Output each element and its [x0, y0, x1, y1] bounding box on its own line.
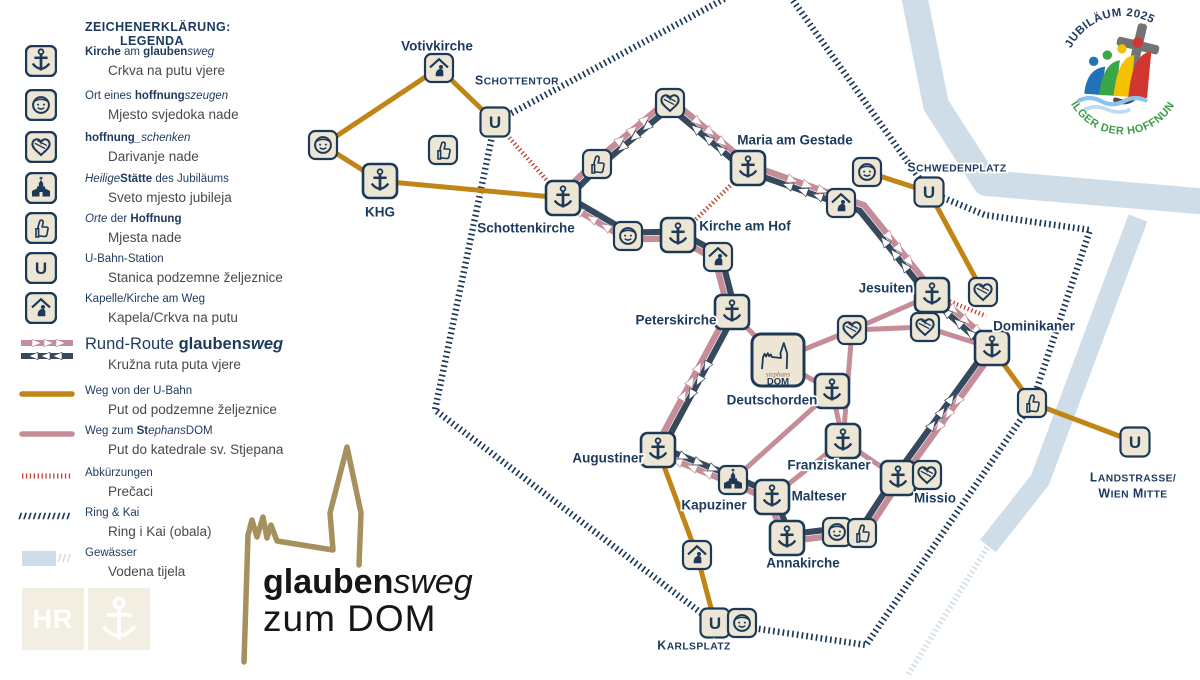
- map-node-schottentor-u: U: [481, 108, 510, 137]
- legend-sw-orange-icon: [18, 386, 76, 419]
- map-label-4: Maria am Gestade: [737, 133, 853, 148]
- legend-item-5-de: U-Bahn-Station: [85, 253, 164, 265]
- logo-line2: zum DOM: [263, 600, 473, 638]
- map-label-6: SCHWEDENPLATZ: [907, 161, 1006, 175]
- jubilee-2025-badge: JUBILÄUM 2025 PILGER DER HOFFNUNG: [1055, 8, 1191, 144]
- legend-sw-water-icon: [18, 548, 76, 581]
- poster-canvas: UUstephansDOMUUVotivkircheSCHOTTENTORKHG…: [0, 0, 1200, 675]
- map-node-malteser: [755, 480, 789, 514]
- legend-item-11-hr: Ring i Kai (obala): [108, 524, 212, 539]
- legend-item-9-de: Weg zum StephansDOM: [85, 425, 213, 437]
- glaubensweg-logo: glaubensweg zum DOM: [230, 425, 510, 675]
- legend-item-2-de: hoffnung_schenken: [85, 132, 190, 144]
- map-node-maria-am-gestade: [731, 151, 765, 185]
- ubahn-way-3: [380, 181, 563, 198]
- legend-item-1-hr: Mjesto svjedoka nade: [108, 107, 239, 122]
- map-label-17: KARLSPLATZ: [657, 639, 730, 653]
- logo-word-glauben: glauben: [263, 563, 393, 601]
- map-label-18: LANDSTRASSE/: [1090, 471, 1176, 485]
- map-node-votivkirche: [425, 54, 453, 82]
- map-node-khg: [363, 164, 397, 198]
- legend-item-11-de: Ring & Kai: [85, 507, 139, 519]
- legend-item-0-hr: Crkva na putu vjere: [108, 63, 225, 78]
- legend-item-6-hr: Kapela/Crkva na putu: [108, 310, 238, 325]
- map-node-heart-mid: [838, 316, 866, 344]
- map-node-missio: [881, 461, 915, 495]
- map-label-2: KHG: [365, 205, 395, 220]
- map-label-19: WIEN MITTE: [1098, 487, 1167, 501]
- map-label-0: Votivkirche: [401, 39, 473, 54]
- legend-item-10-de: Abkürzungen: [85, 467, 153, 479]
- map-node-schottenkirche: [546, 181, 580, 215]
- map-node-heart-n: [656, 89, 684, 117]
- legend-anchor-icon: [25, 45, 57, 82]
- ubahn-icon: U: [489, 113, 501, 132]
- map-node-peterskirche: [715, 295, 749, 329]
- map-node-franziskaner: [826, 424, 860, 458]
- legend-sw-dotted-icon: [18, 468, 76, 501]
- map-node-chapel-hof: [704, 243, 732, 271]
- legend-item-7-hr: Kružna ruta puta vjere: [108, 357, 241, 372]
- map-node-thumb-n: [583, 150, 611, 178]
- legend-item-5-hr: Stanica podzemne željeznice: [108, 270, 283, 285]
- logo-line1: glaubensweg: [263, 565, 473, 600]
- map-label-12: Malteser: [792, 489, 848, 504]
- legend-item-12-hr: Vodena tijela: [108, 564, 185, 579]
- legend-ubahn-icon: U: [25, 252, 57, 289]
- map-label-14: Augustiner: [572, 451, 644, 466]
- legend-chapel-icon: [25, 292, 57, 329]
- map-node-thumb-nw: [429, 136, 457, 164]
- map-label-9: Peterskirche: [635, 313, 717, 328]
- legend-item-6-de: Kapelle/Kirche am Weg: [85, 293, 205, 305]
- map-node-dominikaner: [975, 331, 1009, 365]
- map-label-8: Dominikaner: [993, 319, 1076, 334]
- map-node-smiley-karls: [728, 609, 756, 637]
- map-label-11: Franziskaner: [787, 458, 871, 473]
- map-label-10: Deutschorden: [727, 393, 818, 408]
- map-label-1: SCHOTTENTOR: [475, 74, 559, 88]
- svg-text:U: U: [489, 113, 501, 132]
- map-node-chapel-s: [683, 541, 711, 569]
- legend-sw-hatch-icon: [18, 508, 76, 541]
- legend-panel: ZEICHENERKLÄRUNG: LEGENDA Kirche am glau…: [0, 0, 250, 675]
- legend-thumb-icon: [25, 212, 57, 249]
- svg-text:U: U: [35, 259, 47, 278]
- map-node-jesuiten: [915, 278, 949, 312]
- legend-item-10-hr: Prečaci: [108, 484, 153, 499]
- svg-text:U: U: [923, 183, 935, 202]
- legend-item-4-hr: Mjesta nade: [108, 230, 182, 245]
- map-label-5: Kirche am Hof: [699, 219, 791, 234]
- hr-watermark: HR: [22, 588, 84, 650]
- legend-item-1-de: Ort eines hoffnungszeugen: [85, 90, 228, 102]
- map-label-13: Missio: [914, 491, 956, 506]
- legend-item-7-de: Rund-Route glaubensweg: [85, 335, 283, 354]
- ubahn-icon: U: [923, 183, 935, 202]
- legend-item-8-hr: Put od podzemne željeznice: [108, 402, 277, 417]
- map-node-schwedenplatz-u: U: [915, 178, 944, 207]
- legend-item-3-de: HeiligeStätte des Jubiläums: [85, 173, 229, 185]
- legend-item-3-hr: Sveto mjesto jubileja: [108, 190, 232, 205]
- map-node-heart-missio: [913, 461, 941, 489]
- map-node-deutschorden: [815, 374, 849, 408]
- logo-text: glaubensweg zum DOM: [263, 565, 473, 637]
- legend-sw-route-icon: [18, 336, 76, 369]
- legend-item-4-de: Orte der Hoffnung: [85, 213, 181, 225]
- map-node-kapuziner: [719, 466, 747, 494]
- map-node-chapel-ne: [827, 189, 855, 217]
- legend-item-12-de: Gewässer: [85, 547, 137, 559]
- map-node-stephansdom: stephansDOM: [752, 334, 804, 388]
- ubahn-icon: U: [1129, 433, 1141, 452]
- legend-sw-pink-icon: [18, 426, 76, 459]
- map-node-smiley-ne: [853, 158, 881, 186]
- legend-item-2-hr: Darivanje nade: [108, 149, 199, 164]
- legend-item-0-de: Kirche am glaubensweg: [85, 46, 214, 58]
- ubahn-way-0: [323, 68, 439, 145]
- legend-item-8-de: Weg von der U-Bahn: [85, 385, 192, 397]
- svg-text:U: U: [1129, 433, 1141, 452]
- pilger-der-hoffnung-logo: JUBILÄUM 2025 PILGER DER HOFFNUNG: [1055, 8, 1191, 144]
- ubahn-icon: U: [709, 614, 721, 633]
- water-hatch-line: [906, 540, 992, 675]
- map-label-3: Schottenkirche: [477, 221, 575, 236]
- map-node-kirche-am-hof: [661, 218, 695, 252]
- map-node-smiley-hof: [614, 222, 642, 250]
- map-label-7: Jesuiten: [859, 281, 914, 296]
- map-node-annakirche: [770, 521, 804, 555]
- map-node-thumb-anna: [848, 519, 876, 547]
- map-label-16: Annakirche: [766, 556, 840, 571]
- logo-word-sweg: sweg: [393, 563, 472, 601]
- svg-text:U: U: [709, 614, 721, 633]
- legend-title: ZEICHENERKLÄRUNG:: [85, 20, 231, 34]
- anchor-watermark: [88, 588, 150, 650]
- map-node-karlsplatz-u: U: [701, 609, 730, 638]
- map-node-heart-jesuiten: [969, 278, 997, 306]
- anchor-watermark-icon: [94, 594, 144, 644]
- map-node-landstrasse-u: U: [1121, 428, 1150, 457]
- svg-text:DOM: DOM: [767, 377, 789, 388]
- map-node-smiley-anna: [823, 518, 851, 546]
- map-node-smiley-nw: [309, 131, 337, 159]
- map-label-15: Kapuziner: [681, 498, 747, 513]
- legend-heart-icon: [25, 131, 57, 168]
- map-node-thumb-e: [1018, 389, 1046, 417]
- legend-smiley-icon: [25, 89, 57, 126]
- map-node-augustiner: [641, 433, 675, 467]
- legend-church-icon: [25, 172, 57, 209]
- map-node-heart-mid-e: [911, 313, 939, 341]
